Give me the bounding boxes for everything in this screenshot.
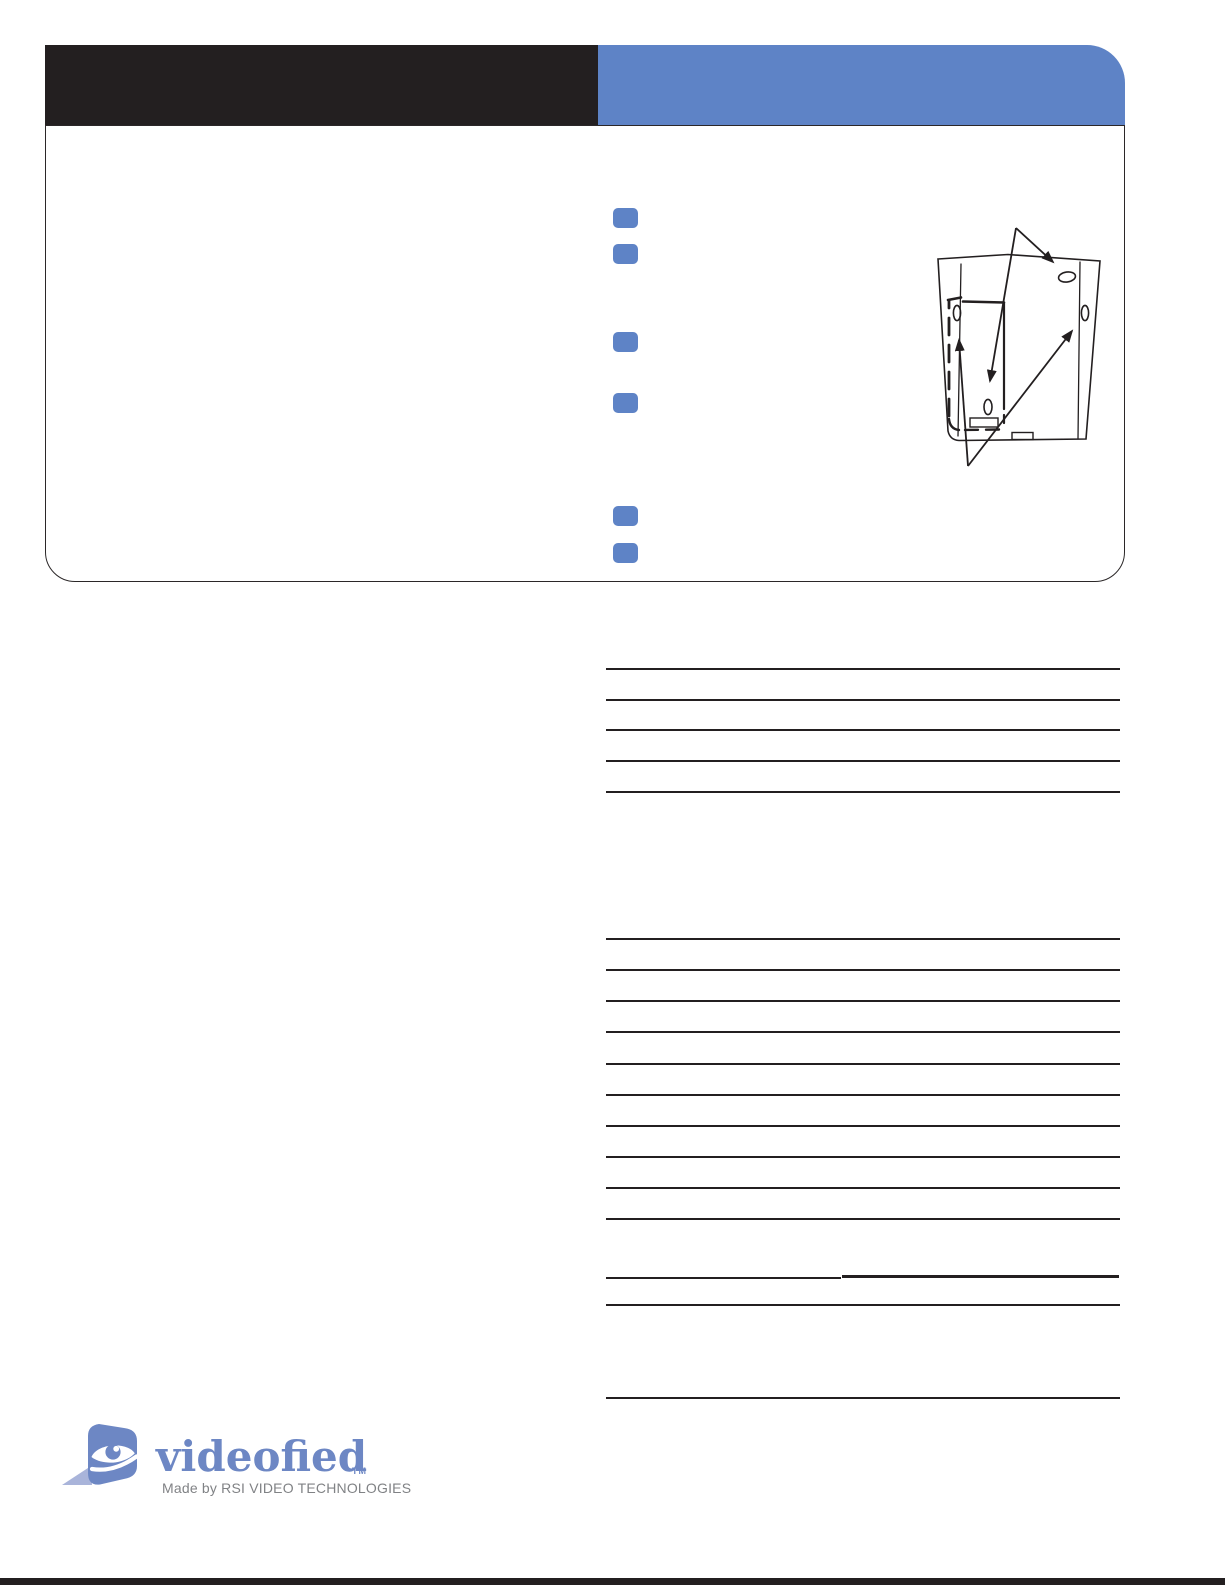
table-rule-line [606, 760, 1120, 762]
footer-bar [0, 1578, 1225, 1585]
list-bullet-marker [613, 506, 638, 526]
list-bullet-marker [613, 332, 638, 352]
table-rule-line [606, 1187, 1120, 1189]
brand-wordmark: videofied [156, 1436, 367, 1478]
table-rule-line [606, 668, 1120, 670]
table-rule-line [606, 1031, 1120, 1033]
list-bullet-marker [613, 393, 638, 413]
table-rule-line [606, 1156, 1120, 1158]
table-rule-line [606, 938, 1120, 940]
screw-hole-bottom [984, 399, 992, 414]
tamper-slot [1012, 433, 1033, 440]
table-rule-line [606, 729, 1120, 731]
screw-hole-right [1081, 305, 1088, 320]
eye-icon [88, 1424, 137, 1485]
table-rule-line [606, 1277, 841, 1279]
document-page: videofied TM Made by RSI VIDEO TECHNOLOG… [0, 0, 1225, 1585]
header-black-bar [45, 45, 598, 125]
table-rule-line [606, 969, 1120, 971]
table-rule-line [606, 1094, 1120, 1096]
table-rule-line [606, 1397, 1120, 1399]
header-blue-bar [598, 45, 1125, 125]
table-rule-line [606, 1218, 1120, 1220]
table-rule-line [606, 1000, 1120, 1002]
table-rule-line [606, 699, 1120, 701]
list-bullet-marker [613, 244, 638, 264]
logo-fold-triangle [62, 1466, 92, 1485]
table-rule-line [606, 1304, 1120, 1306]
list-bullet-marker [613, 543, 638, 563]
back-plate-diagram [900, 210, 1125, 480]
plate-outline [938, 255, 1100, 441]
list-bullet-marker [613, 208, 638, 228]
table-rule-line [606, 1125, 1120, 1127]
table-rule-line [606, 791, 1120, 793]
brand-tagline: Made by RSI VIDEO TECHNOLOGIES [162, 1481, 392, 1496]
screw-hole-top-right [1058, 271, 1076, 283]
trademark-symbol: TM [352, 1466, 367, 1476]
plate-right-fold [1078, 262, 1080, 439]
table-rule-line [606, 1063, 1120, 1065]
connector-slot [970, 418, 998, 427]
table-rule-line [842, 1275, 1119, 1278]
